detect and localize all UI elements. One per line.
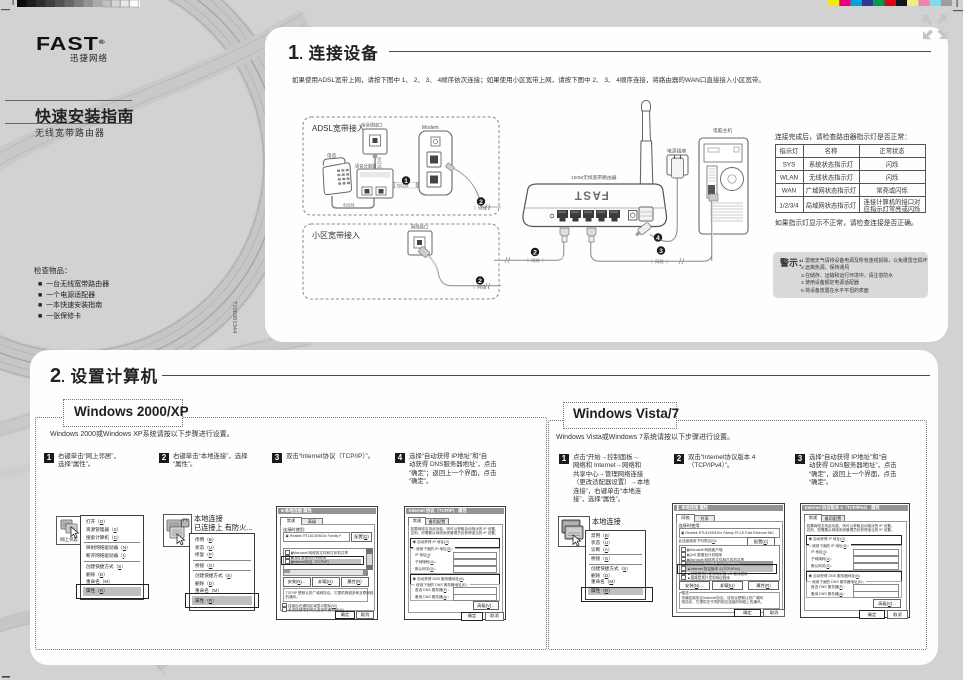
svg-text:2: 2: [478, 278, 482, 285]
svg-text:电话线: 电话线: [343, 203, 355, 208]
svg-text:150M无线宽带路由器: 150M无线宽带路由器: [571, 174, 617, 181]
svg-text:闪烁: 闪烁: [886, 173, 899, 182]
svg-text:电话线: 电话线: [377, 157, 382, 169]
svg-text:连接计算机的接口对: 连接计算机的接口对: [864, 197, 921, 206]
svg-text:电话线接口: 电话线接口: [361, 122, 382, 129]
svg-text:正常状态: 正常状态: [879, 146, 905, 155]
svg-text:网线接口: 网线接口: [411, 224, 428, 231]
svg-text:1/2/3/4: 1/2/3/4: [779, 203, 799, 210]
svg-text:SYS: SYS: [783, 162, 796, 169]
svg-text:Modem: Modem: [422, 125, 439, 131]
svg-text:FAST: FAST: [573, 189, 608, 201]
svg-text:名称: 名称: [825, 146, 838, 155]
svg-text:常亮或闪烁: 常亮或闪烁: [876, 186, 908, 195]
svg-text:广域网状态指示灯: 广域网状态指示灯: [806, 186, 857, 195]
svg-text:〕网线〔: 〕网线〔: [527, 257, 545, 264]
svg-text:1: 1: [404, 178, 408, 185]
svg-text:语音分离器: 语音分离器: [355, 163, 377, 170]
svg-text:局域网状态指示灯: 局域网状态指示灯: [806, 201, 857, 210]
svg-text:2: 2: [533, 250, 537, 257]
svg-text:指示灯: 指示灯: [780, 146, 800, 155]
svg-text:〕网线〔: 〕网线〔: [651, 258, 669, 265]
svg-text:电源插座: 电源插座: [667, 148, 686, 155]
svg-text:闪烁: 闪烁: [886, 160, 899, 169]
svg-text:2: 2: [479, 199, 483, 206]
svg-text:ADSL宽带接入: ADSL宽带接入: [312, 123, 365, 133]
svg-text:4: 4: [656, 235, 660, 242]
svg-text:无线状态指示灯: 无线状态指示灯: [809, 173, 854, 182]
svg-text:3: 3: [659, 248, 663, 255]
svg-text:WAN: WAN: [782, 188, 797, 195]
svg-text:应指示灯常亮或闪烁: 应指示灯常亮或闪烁: [864, 204, 921, 213]
svg-text:电脑主机: 电脑主机: [713, 127, 732, 134]
svg-text:小区宽带接入: 小区宽带接入: [312, 230, 360, 240]
svg-text:WLAN: WLAN: [780, 175, 799, 182]
svg-text:系统状态指示灯: 系统状态指示灯: [809, 160, 854, 169]
